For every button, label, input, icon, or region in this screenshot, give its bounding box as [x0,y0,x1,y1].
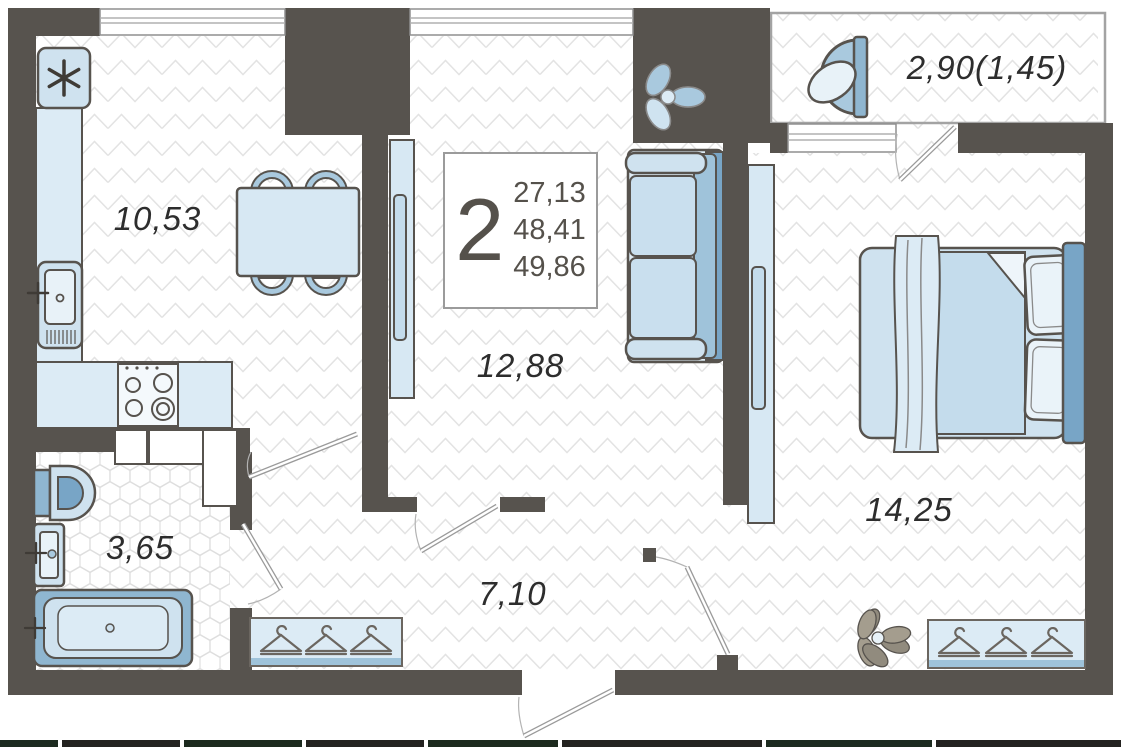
bathtub [25,590,192,666]
kitchen-window [100,9,285,35]
headboard [1063,243,1085,443]
dining-table [237,171,359,295]
balcony-area-label: 2,90(1,45) [862,49,1112,87]
tv-unit-living [390,140,414,398]
living-room-area-label: 12,88 [438,347,603,385]
kitchen-area-label: 10,53 [85,200,230,238]
tv-unit-bedroom [748,165,774,523]
apartment-info-box: 2 27,13 48,41 49,86 [443,152,598,309]
area-summary: 27,13 48,41 49,86 [513,175,586,286]
living-room-window [410,9,633,35]
floor-bedroom-doorway [723,505,748,670]
floor-balcony-doorway [896,123,958,153]
bathroom-area-label: 3,65 [75,529,205,567]
door-entry [519,690,613,736]
tv-icon [752,267,765,409]
total-area-value: 49,86 [513,249,586,286]
flat-area-value: 48,41 [513,212,586,249]
bed-runner [894,236,940,452]
sofa [626,150,723,362]
bottom-strip [0,740,1121,747]
wardrobe-hallway [250,618,402,666]
toilet [34,466,95,520]
stove [118,364,178,426]
tv-icon [394,195,406,340]
bed [860,236,1085,452]
room-count: 2 [455,186,504,274]
wardrobe-bedroom [928,620,1085,668]
hallway-area-label: 7,10 [450,575,575,613]
bedroom-area-label: 14,25 [834,491,984,529]
living-area-value: 27,13 [513,175,586,212]
fridge [38,48,90,108]
bedroom-balcony-window [788,124,896,152]
floor-plan: 10,53 12,88 7,10 3,65 14,25 2,90(1,45) 2… [0,0,1121,747]
